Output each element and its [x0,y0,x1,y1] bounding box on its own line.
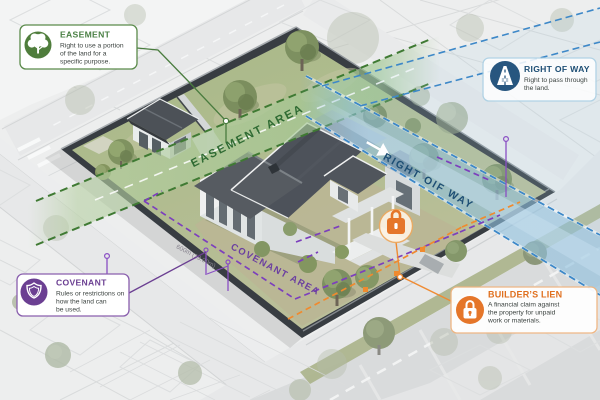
svg-text:A financial claim against: A financial claim against [488,302,560,309]
svg-text:Right to pass through: Right to pass through [524,77,588,84]
svg-text:of the land for a: of the land for a [60,51,107,58]
svg-text:specific purpose.: specific purpose. [60,59,110,66]
svg-text:EASEMENT: EASEMENT [60,30,111,40]
svg-text:COVENANT: COVENANT [56,278,107,288]
svg-text:how the land can: how the land can [56,299,107,306]
svg-text:the property for unpaid: the property for unpaid [488,310,556,317]
svg-text:be used.: be used. [56,307,82,314]
svg-text:BUILDER’S LIEN: BUILDER’S LIEN [488,290,562,300]
svg-text:Right to use a portion: Right to use a portion [60,43,124,50]
svg-text:Rules or restrictions on: Rules or restrictions on [56,291,125,298]
svg-text:RIGHT OF WAY: RIGHT OF WAY [524,64,590,74]
svg-text:work or materials.: work or materials. [487,318,541,325]
svg-text:the land.: the land. [524,85,550,92]
